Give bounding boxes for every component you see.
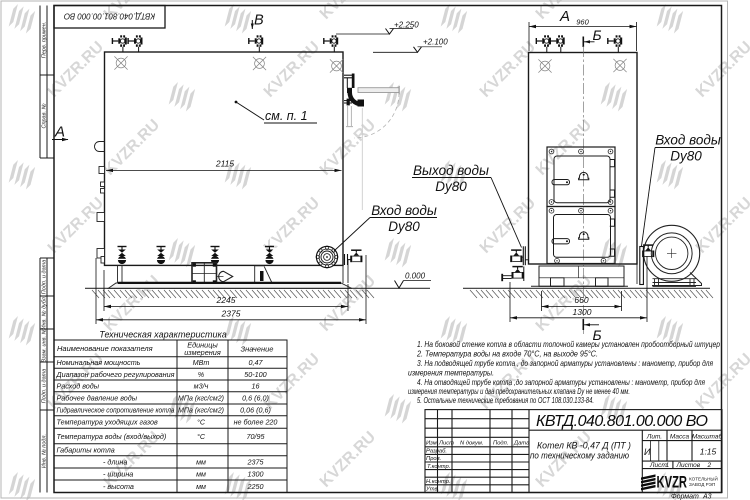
- svg-text:Масса: Масса: [670, 433, 690, 440]
- svg-text:Температура уходящих газов: Температура уходящих газов: [57, 418, 159, 427]
- svg-text:мм: мм: [196, 482, 206, 491]
- svg-text:МВт: МВт: [193, 358, 210, 367]
- svg-text:Dy80: Dy80: [435, 179, 467, 194]
- svg-text:Инв. № дубл.: Инв. № дубл.: [42, 296, 48, 330]
- svg-text:м3/ч: м3/ч: [194, 382, 209, 391]
- svg-text:Техническая характеристика: Техническая характеристика: [99, 330, 226, 340]
- svg-text:Взам. инв. №: Взам. инв. №: [42, 328, 48, 362]
- svg-text:см. п. 1: см. п. 1: [265, 109, 308, 123]
- svg-text:%: %: [198, 370, 205, 379]
- svg-text:2115: 2115: [215, 159, 235, 169]
- svg-text:Подп. и дата: Подп. и дата: [42, 369, 48, 403]
- svg-text:КВТД.040.801.00.000 ВО: КВТД.040.801.00.000 ВО: [64, 12, 155, 21]
- svg-text:В: В: [254, 13, 264, 29]
- svg-text:измерения: измерения: [184, 348, 221, 357]
- svg-text:Температура воды (вход/выход): Температура воды (вход/выход): [57, 432, 167, 441]
- svg-text:4. На отводящей трубе котла ,: 4. На отводящей трубе котла ,до запорной…: [417, 378, 706, 387]
- svg-text:Лист: Лист: [438, 440, 454, 446]
- svg-text:Н.контр.: Н.контр.: [426, 479, 451, 485]
- svg-text:измерения температуры и два пр: измерения температуры и два предохраните…: [408, 387, 630, 396]
- svg-text:Dy80: Dy80: [670, 149, 702, 164]
- svg-text:Разраб.: Разраб.: [426, 449, 447, 455]
- svg-text:2250: 2250: [247, 482, 264, 491]
- svg-text:Подп. и дата: Подп. и дата: [42, 260, 48, 294]
- svg-text:ЗАВОД РЭП: ЗАВОД РЭП: [689, 482, 715, 487]
- svg-text:Выход воды: Выход воды: [413, 163, 489, 178]
- svg-text:2375: 2375: [247, 458, 265, 467]
- svg-text:0,6 (6,0): 0,6 (6,0): [242, 394, 269, 403]
- svg-text:0,06 (0,6): 0,06 (0,6): [240, 406, 271, 415]
- svg-text:Рабочее давление воды: Рабочее давление воды: [57, 394, 138, 403]
- svg-text:5. Остальные технические треб: 5. Остальные технические требования по О…: [417, 396, 594, 405]
- svg-text:Б: Б: [593, 27, 602, 43]
- svg-text:Значение: Значение: [241, 345, 274, 354]
- svg-text:Справ. №: Справ. №: [42, 103, 48, 128]
- svg-text:Вход воды: Вход воды: [655, 133, 721, 148]
- svg-text:мм: мм: [196, 470, 206, 479]
- svg-text:2245: 2245: [216, 295, 236, 305]
- svg-text:- высота: - высота: [103, 482, 134, 491]
- svg-text:Номинальная мощность: Номинальная мощность: [57, 358, 141, 367]
- svg-text:Подп.: Подп.: [493, 440, 508, 446]
- svg-text:Перв. примен.: Перв. примен.: [42, 22, 48, 59]
- svg-text:°С: °С: [197, 432, 206, 441]
- svg-text:1300: 1300: [248, 470, 264, 479]
- svg-text:И: И: [644, 447, 651, 457]
- svg-text:1300: 1300: [573, 307, 592, 317]
- svg-text:1:15: 1:15: [700, 447, 717, 457]
- svg-text:N докум.: N докум.: [460, 440, 483, 446]
- svg-text:3. На подводящей трубе котла: 3. На подводящей трубе котла , до запорн…: [417, 359, 714, 368]
- svg-text:Гидравлическое сопротивление к: Гидравлическое сопротивление котла: [57, 406, 175, 415]
- svg-text:А: А: [54, 124, 65, 141]
- svg-text:по техническому заданию: по техническому заданию: [530, 451, 629, 462]
- svg-text:- ширина: - ширина: [103, 470, 133, 479]
- svg-text:16: 16: [252, 382, 260, 391]
- svg-text:КОТЕЛЬНЫЙ: КОТЕЛЬНЫЙ: [689, 475, 718, 482]
- svg-text:Вход воды: Вход воды: [371, 203, 437, 218]
- svg-text:50-100: 50-100: [244, 370, 266, 379]
- svg-text:1. На боковой стенке котла в: 1. На боковой стенке котла в области топ…: [417, 340, 720, 349]
- svg-text:70/95: 70/95: [247, 432, 266, 441]
- svg-text:не более 220: не более 220: [234, 418, 278, 427]
- svg-text:Масштаб: Масштаб: [692, 432, 723, 440]
- svg-text:МПа (кгс/см2): МПа (кгс/см2): [178, 394, 224, 403]
- svg-text:- длина: - длина: [103, 458, 127, 467]
- svg-text:Т.контр.: Т.контр.: [427, 464, 450, 470]
- svg-text:Изм: Изм: [426, 440, 437, 446]
- svg-text:0.000: 0.000: [405, 272, 426, 281]
- svg-text:Утв.: Утв.: [425, 487, 439, 493]
- svg-text:Формат: Формат: [671, 494, 699, 500]
- svg-text:мм: мм: [196, 458, 206, 467]
- svg-text:Пров.: Пров.: [426, 456, 441, 462]
- svg-text:2: 2: [707, 462, 712, 469]
- svg-text:0,47: 0,47: [249, 358, 264, 367]
- svg-text:Лит.: Лит.: [646, 433, 662, 440]
- svg-text:Инв. № подл.: Инв. № подл.: [42, 434, 48, 468]
- svg-text:+2.100: +2.100: [423, 38, 448, 47]
- svg-text:2. Температура воды на входе: 2. Температура воды на входе 70°С, на вы…: [416, 350, 598, 359]
- svg-text:Габариты котла: Габариты котла: [57, 446, 115, 455]
- svg-text:Dy80: Dy80: [388, 219, 420, 234]
- svg-text:Диапазон рабочего регулировани: Диапазон рабочего регулирования: [55, 370, 174, 379]
- svg-text:измерения температуры.: измерения температуры.: [408, 369, 494, 378]
- svg-text:Дата: Дата: [513, 440, 530, 446]
- svg-text:960: 960: [576, 17, 589, 26]
- svg-text:660: 660: [574, 295, 588, 305]
- svg-text:А: А: [559, 8, 570, 25]
- svg-text:°С: °С: [197, 418, 206, 427]
- svg-text:2375: 2375: [221, 308, 241, 318]
- svg-text:А3: А3: [702, 494, 712, 500]
- svg-text:Листов: Листов: [676, 462, 701, 469]
- svg-text:Расход воды: Расход воды: [57, 382, 100, 391]
- svg-text:KVZR: KVZR: [657, 473, 688, 492]
- svg-text:КВТД.040.801.00.000 ВО: КВТД.040.801.00.000 ВО: [536, 413, 708, 430]
- svg-text:Наименование показателя: Наименование показателя: [57, 344, 153, 353]
- svg-text:1: 1: [666, 462, 670, 469]
- svg-text:МПа (кгс/см2): МПа (кгс/см2): [178, 406, 224, 415]
